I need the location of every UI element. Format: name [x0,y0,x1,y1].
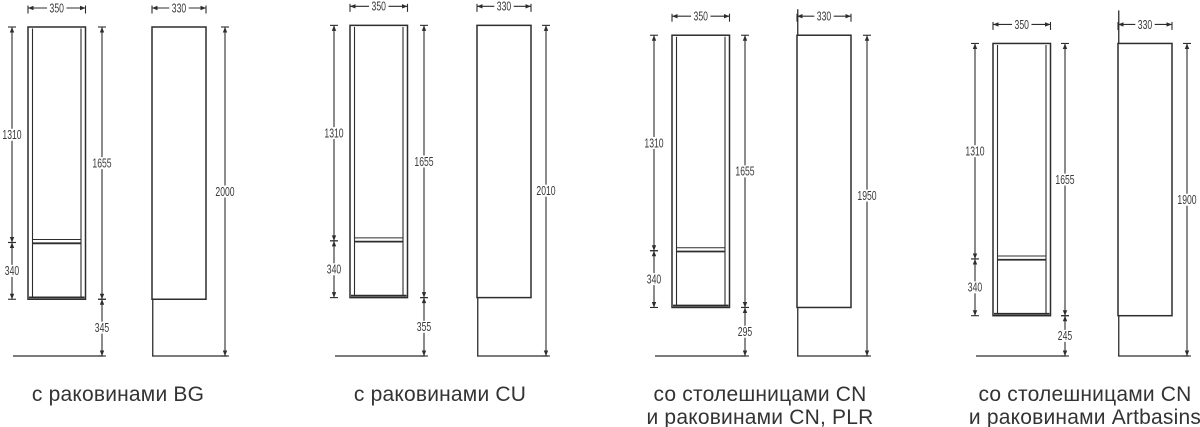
dim-arrow [544,351,548,357]
dim-arrow [332,241,336,247]
dim-arrow [973,43,977,49]
dim-arrow [1063,310,1067,316]
dim-label: 340 [5,263,19,278]
dim-arrow [350,4,356,8]
dim-arrow [10,294,14,300]
dim-arrow [477,4,483,8]
variant-label-line: и раковинами CN, PLR [610,406,910,427]
dim-arrow [422,25,426,31]
dim-arrow [10,237,14,243]
dim-arrow [743,35,747,41]
dim-label: 2000 [215,184,234,199]
side-view-outline [1118,43,1172,315]
dim-label: 340 [968,280,982,295]
dim-arrow [865,35,869,41]
drawing-group-cu: 350330131034016553552010 [322,0,558,356]
dim-arrow [332,25,336,31]
dim-arrow [1167,22,1173,26]
dim-label: 350 [694,9,708,24]
drawing-group-bg: 350330131034016553452000 [0,0,237,356]
dim-arrow [724,14,730,18]
dim-arrow [1185,43,1189,49]
dim-label: 1655 [735,164,754,179]
dim-label: 1310 [965,143,984,158]
dim-arrow [652,302,656,308]
variant-label-line: и раковинами Artbasins [935,406,1200,427]
dim-arrow [973,253,977,259]
dim-arrow [743,307,747,313]
dim-arrow [422,351,426,357]
dim-arrow [865,351,869,357]
dim-arrow [422,292,426,298]
dim-arrow [402,4,408,8]
dim-label: 2010 [536,183,555,198]
dim-arrow [652,35,656,41]
dim-label: 1655 [414,154,433,169]
dim-arrow [544,25,548,31]
dim-arrow [80,6,86,10]
dim-arrow [100,294,104,300]
dim-label: 330 [172,0,186,15]
dim-arrow [1063,351,1067,357]
dim-label: 355 [417,319,431,334]
dim-arrow [973,259,977,265]
dim-label: 295 [738,324,752,339]
cabinet-spec-diagram: 3503301310340165534520003503301310340165… [0,0,1200,427]
dim-label: 350 [372,0,386,14]
front-view-outline [993,43,1051,315]
variant-label-line: со столешницами CN [610,383,910,406]
dim-arrow [652,245,656,251]
technical-drawing: 3503301310340165534520003503301310340165… [0,0,1200,427]
variant-label-cn-plr: со столешницами CN и раковинами CN, PLR [610,383,910,427]
dim-arrow [10,242,14,248]
dim-arrow [846,14,852,18]
side-view-outline [797,35,851,307]
dim-label: 1310 [644,135,663,150]
dim-label: 1950 [857,188,876,203]
dim-arrow [526,4,532,8]
side-view-outline [477,25,531,297]
dim-arrow [672,14,678,18]
dim-arrow [993,22,999,26]
dim-label: 245 [1058,328,1072,343]
dim-arrow [743,302,747,308]
variant-label-artbasins: со столешницами CN и раковинами Artbasin… [935,383,1200,427]
dim-label: 330 [497,0,511,14]
variant-label-bg: с раковинами BG [0,383,268,406]
dim-arrow [332,292,336,298]
dim-label: 350 [50,0,64,15]
variant-label-line: со столешницами CN [935,383,1200,406]
dim-arrow [10,27,14,33]
variant-label-line: с раковинами BG [0,383,268,406]
dim-arrow [100,351,104,357]
drawing-group-cn-plr: 350330131034016552951950 [642,9,879,356]
dim-arrow [1063,316,1067,322]
dim-arrow [201,6,207,10]
dim-arrow [223,27,227,33]
dim-arrow [100,299,104,305]
side-view-outline [152,27,206,299]
front-view-outline [28,27,86,299]
dim-arrow [28,6,34,10]
dim-arrow [100,27,104,33]
dim-label: 1310 [324,125,343,140]
dim-arrow [652,251,656,257]
dim-label: 1900 [1177,192,1196,207]
front-view-outline [672,35,730,307]
dim-label: 330 [1138,17,1152,32]
dim-label: 1310 [2,127,21,142]
dim-arrow [1185,351,1189,357]
dim-label: 350 [1015,17,1029,32]
dim-label: 340 [327,262,341,277]
dim-label: 345 [95,320,109,335]
dim-arrow [332,235,336,241]
dim-arrow [973,310,977,316]
drawing-group-artbasins: 350330131034016552451900 [963,10,1199,356]
front-view-outline [350,25,408,297]
dim-arrow [1063,43,1067,49]
dim-arrow [422,298,426,304]
dim-arrow [223,351,227,357]
variant-label-line: с раковинами CU [290,383,590,406]
dim-label: 1655 [92,155,111,170]
dim-arrow [743,351,747,357]
dim-arrow [1045,22,1051,26]
dim-label: 330 [817,9,831,24]
variant-label-cu: с раковинами CU [290,383,590,406]
dim-label: 1655 [1055,172,1074,187]
dim-label: 340 [647,271,661,286]
dim-arrow [152,6,158,10]
